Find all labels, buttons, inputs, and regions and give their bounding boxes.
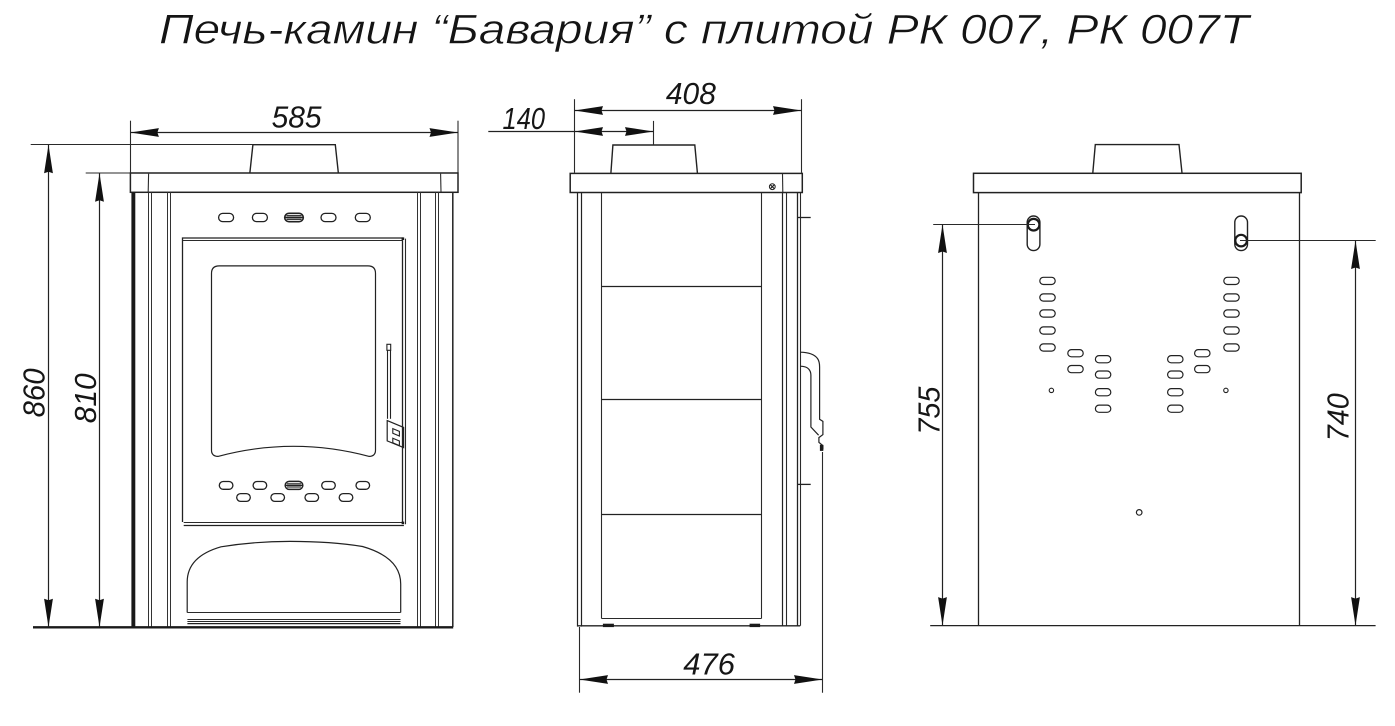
svg-text:755: 755 — [911, 386, 946, 435]
svg-text:740: 740 — [1320, 393, 1355, 441]
svg-text:860: 860 — [17, 368, 52, 417]
svg-text:810: 810 — [68, 373, 103, 423]
svg-text:Печь-камин “Бавария” с плитой: Печь-камин “Бавария” с плитой РК 007, РК… — [159, 6, 1253, 53]
svg-text:585: 585 — [272, 100, 323, 135]
svg-text:408: 408 — [666, 76, 717, 111]
svg-text:476: 476 — [683, 647, 735, 682]
svg-text:140: 140 — [503, 101, 546, 136]
